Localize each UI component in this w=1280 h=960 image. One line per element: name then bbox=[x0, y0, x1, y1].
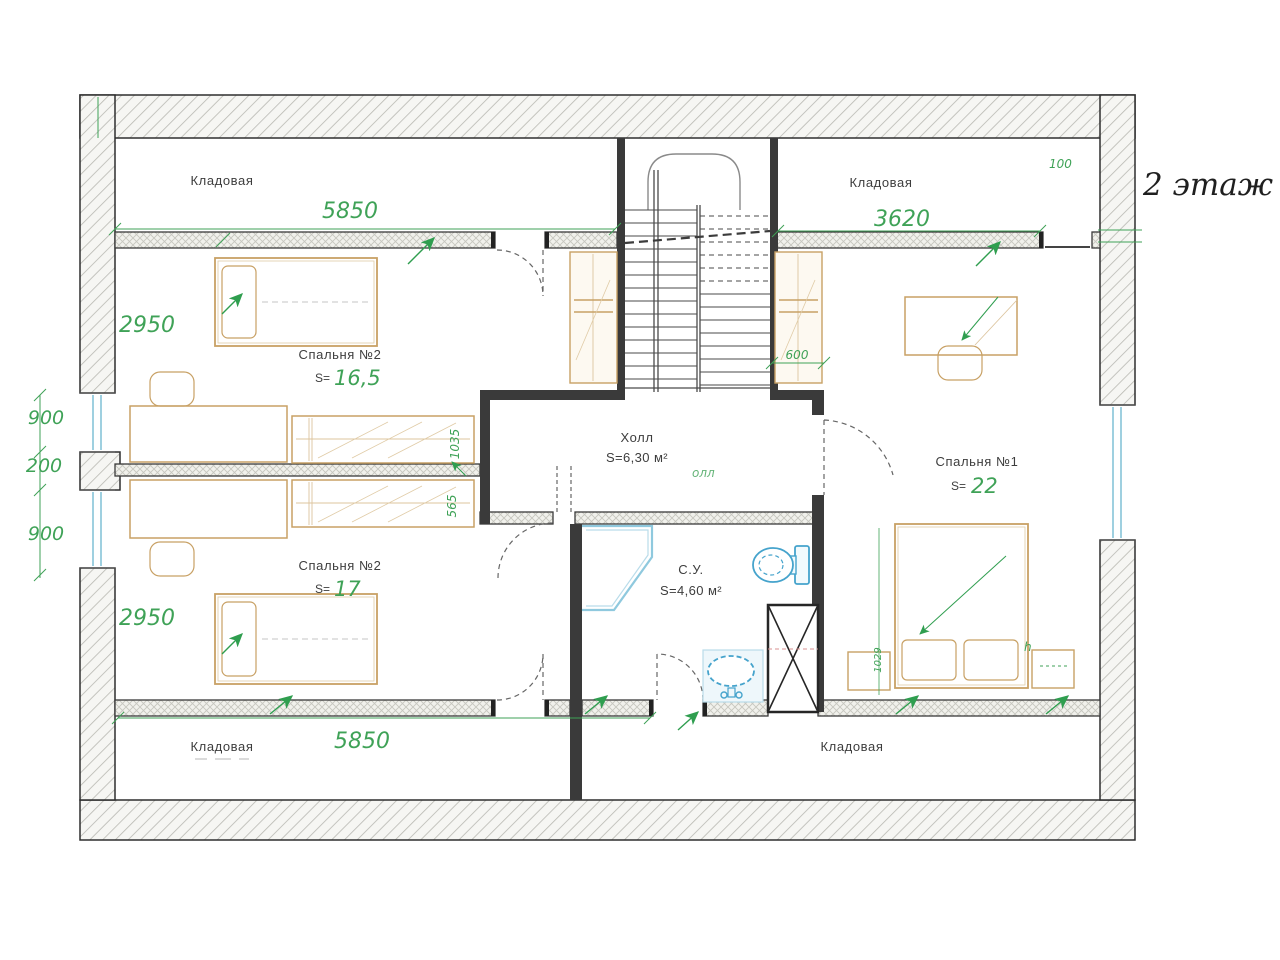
hall-bottom-wall-left bbox=[480, 512, 553, 524]
dim-pier-200: 200 bbox=[26, 455, 62, 477]
door-jamb-5 bbox=[545, 700, 549, 716]
knee-wall-top-right bbox=[775, 232, 1043, 248]
sink bbox=[703, 650, 763, 702]
label-bathroom: С.У. bbox=[678, 562, 704, 577]
label-bedroom2-bottom-s: S= bbox=[315, 582, 330, 596]
arrow bbox=[920, 556, 1006, 634]
desk-bedroom1 bbox=[905, 297, 1017, 380]
arrow bbox=[678, 712, 698, 730]
knee-wall-top-mid bbox=[545, 232, 617, 248]
label-bedroom1-s: S= bbox=[951, 479, 966, 493]
wall-right-upper bbox=[1100, 95, 1135, 405]
door-jamb-4 bbox=[491, 700, 495, 716]
dim-closet-600: 600 bbox=[786, 348, 809, 362]
bed-bedroom2-top bbox=[215, 258, 377, 346]
toilet bbox=[753, 546, 809, 584]
door-swing-bathroom bbox=[657, 654, 703, 700]
hall-top-wall-left bbox=[480, 390, 625, 400]
value-bedroom1-area: 22 bbox=[971, 474, 998, 498]
arrow bbox=[222, 294, 242, 314]
window-left-upper bbox=[80, 393, 115, 452]
stair-treads-right bbox=[700, 294, 770, 385]
door-jamb-3 bbox=[1039, 232, 1043, 248]
bed-bedroom1 bbox=[895, 524, 1028, 688]
value-bedroom2-top-area: 16,5 bbox=[334, 366, 381, 390]
dim-top-right: 3620 bbox=[874, 207, 930, 232]
floor-plan-page: Кладовая Кладовая Спальня №2 S= 16,5 Спа… bbox=[0, 0, 1280, 960]
stair-headroom-arc bbox=[648, 154, 740, 210]
value-bathroom-area: S=4,60 м² bbox=[660, 583, 722, 598]
label-bedroom2-bottom: Спальня №2 bbox=[298, 558, 381, 573]
dim-window-900-top: 900 bbox=[28, 407, 64, 429]
dim-wardrobe-1035: 1035 bbox=[448, 429, 462, 460]
dim-wardrobe-565: 565 bbox=[445, 495, 459, 518]
vent-shaft bbox=[768, 605, 818, 712]
label-storage-bottom-right: Кладовая bbox=[820, 739, 883, 754]
hall-left-wall bbox=[480, 390, 490, 524]
wardrobe-bedroom2-top bbox=[292, 416, 474, 463]
partition-bedroom2 bbox=[115, 464, 480, 476]
knee-wall-top-right-stub bbox=[1092, 232, 1100, 248]
label-bedroom2-top: Спальня №2 bbox=[298, 347, 381, 362]
hall-bottom-wall-right bbox=[575, 512, 820, 524]
wall-right-lower bbox=[1100, 540, 1135, 800]
value-hall-area: S=6,30 м² bbox=[606, 450, 668, 465]
floor-title: 2 этаж bbox=[1142, 167, 1273, 203]
stair-treads-left bbox=[625, 210, 697, 379]
label-storage-top-left: Кладовая bbox=[190, 173, 253, 188]
wall-left-lower bbox=[80, 568, 115, 800]
arrow bbox=[222, 634, 242, 654]
window-left-lower bbox=[80, 490, 115, 568]
door-swing-bedroom2-top bbox=[497, 250, 543, 296]
staircase bbox=[625, 154, 770, 392]
arrow bbox=[962, 297, 998, 340]
floor-plan-drawing: Кладовая Кладовая Спальня №2 S= 16,5 Спа… bbox=[0, 0, 1280, 960]
desk-bedroom2-bottom bbox=[130, 480, 287, 576]
dim-left-lower: 2950 bbox=[119, 606, 175, 631]
door-jamb-6 bbox=[649, 700, 653, 716]
dim-left-upper: 2950 bbox=[119, 313, 175, 338]
green-arrows bbox=[222, 238, 1068, 730]
wall-top bbox=[80, 95, 1135, 138]
nightstand-right bbox=[1032, 650, 1074, 688]
door-jamb-2 bbox=[545, 232, 549, 248]
label-bedroom1: Спальня №1 bbox=[935, 454, 1018, 469]
dim-top-left: 5850 bbox=[322, 199, 378, 224]
door-swing-bedroom2-bottom bbox=[497, 654, 543, 700]
knee-wall-bottom-5 bbox=[818, 700, 1100, 716]
door-jamb-1 bbox=[491, 232, 495, 248]
stair-rails bbox=[654, 170, 700, 392]
knee-wall-bottom-1 bbox=[115, 700, 495, 716]
wall-left-pier bbox=[80, 452, 120, 490]
dim-wall-100: 100 bbox=[1049, 157, 1072, 171]
bathroom-left-wall bbox=[570, 524, 582, 800]
door-swing-bedroom1 bbox=[824, 420, 893, 495]
note-h-green: h bbox=[1024, 640, 1032, 654]
closet-stair-left bbox=[570, 252, 617, 383]
window-right bbox=[1100, 405, 1135, 540]
dim-bottom: 5850 bbox=[334, 729, 390, 754]
shower bbox=[582, 526, 652, 610]
value-bedroom2-bottom-area: 17 bbox=[334, 577, 361, 601]
dimension-graphics bbox=[34, 97, 1142, 724]
desk-bedroom2-top bbox=[130, 372, 287, 462]
door-swing-hall-sw bbox=[498, 523, 553, 578]
label-bedroom2-top-s: S= bbox=[315, 371, 330, 385]
opening-hall-bottom bbox=[557, 466, 571, 512]
knee-wall-top-left bbox=[115, 232, 495, 248]
wall-bottom bbox=[80, 800, 1135, 840]
dim-window-900-bottom: 900 bbox=[28, 523, 64, 545]
label-storage-top-right: Кладовая bbox=[849, 175, 912, 190]
dim-bed-1029: 1029 bbox=[873, 647, 884, 672]
bed-bedroom2-bottom bbox=[215, 594, 377, 684]
stairwell-wall-left bbox=[617, 138, 625, 390]
bedroom1-wall-upper bbox=[812, 390, 824, 415]
label-storage-bottom-left: Кладовая bbox=[190, 739, 253, 754]
wall-left-upper bbox=[80, 95, 115, 393]
stair-treads-right-hidden bbox=[700, 216, 770, 281]
label-hall: Холл bbox=[620, 430, 653, 445]
note-hall-green: олл bbox=[692, 466, 715, 480]
